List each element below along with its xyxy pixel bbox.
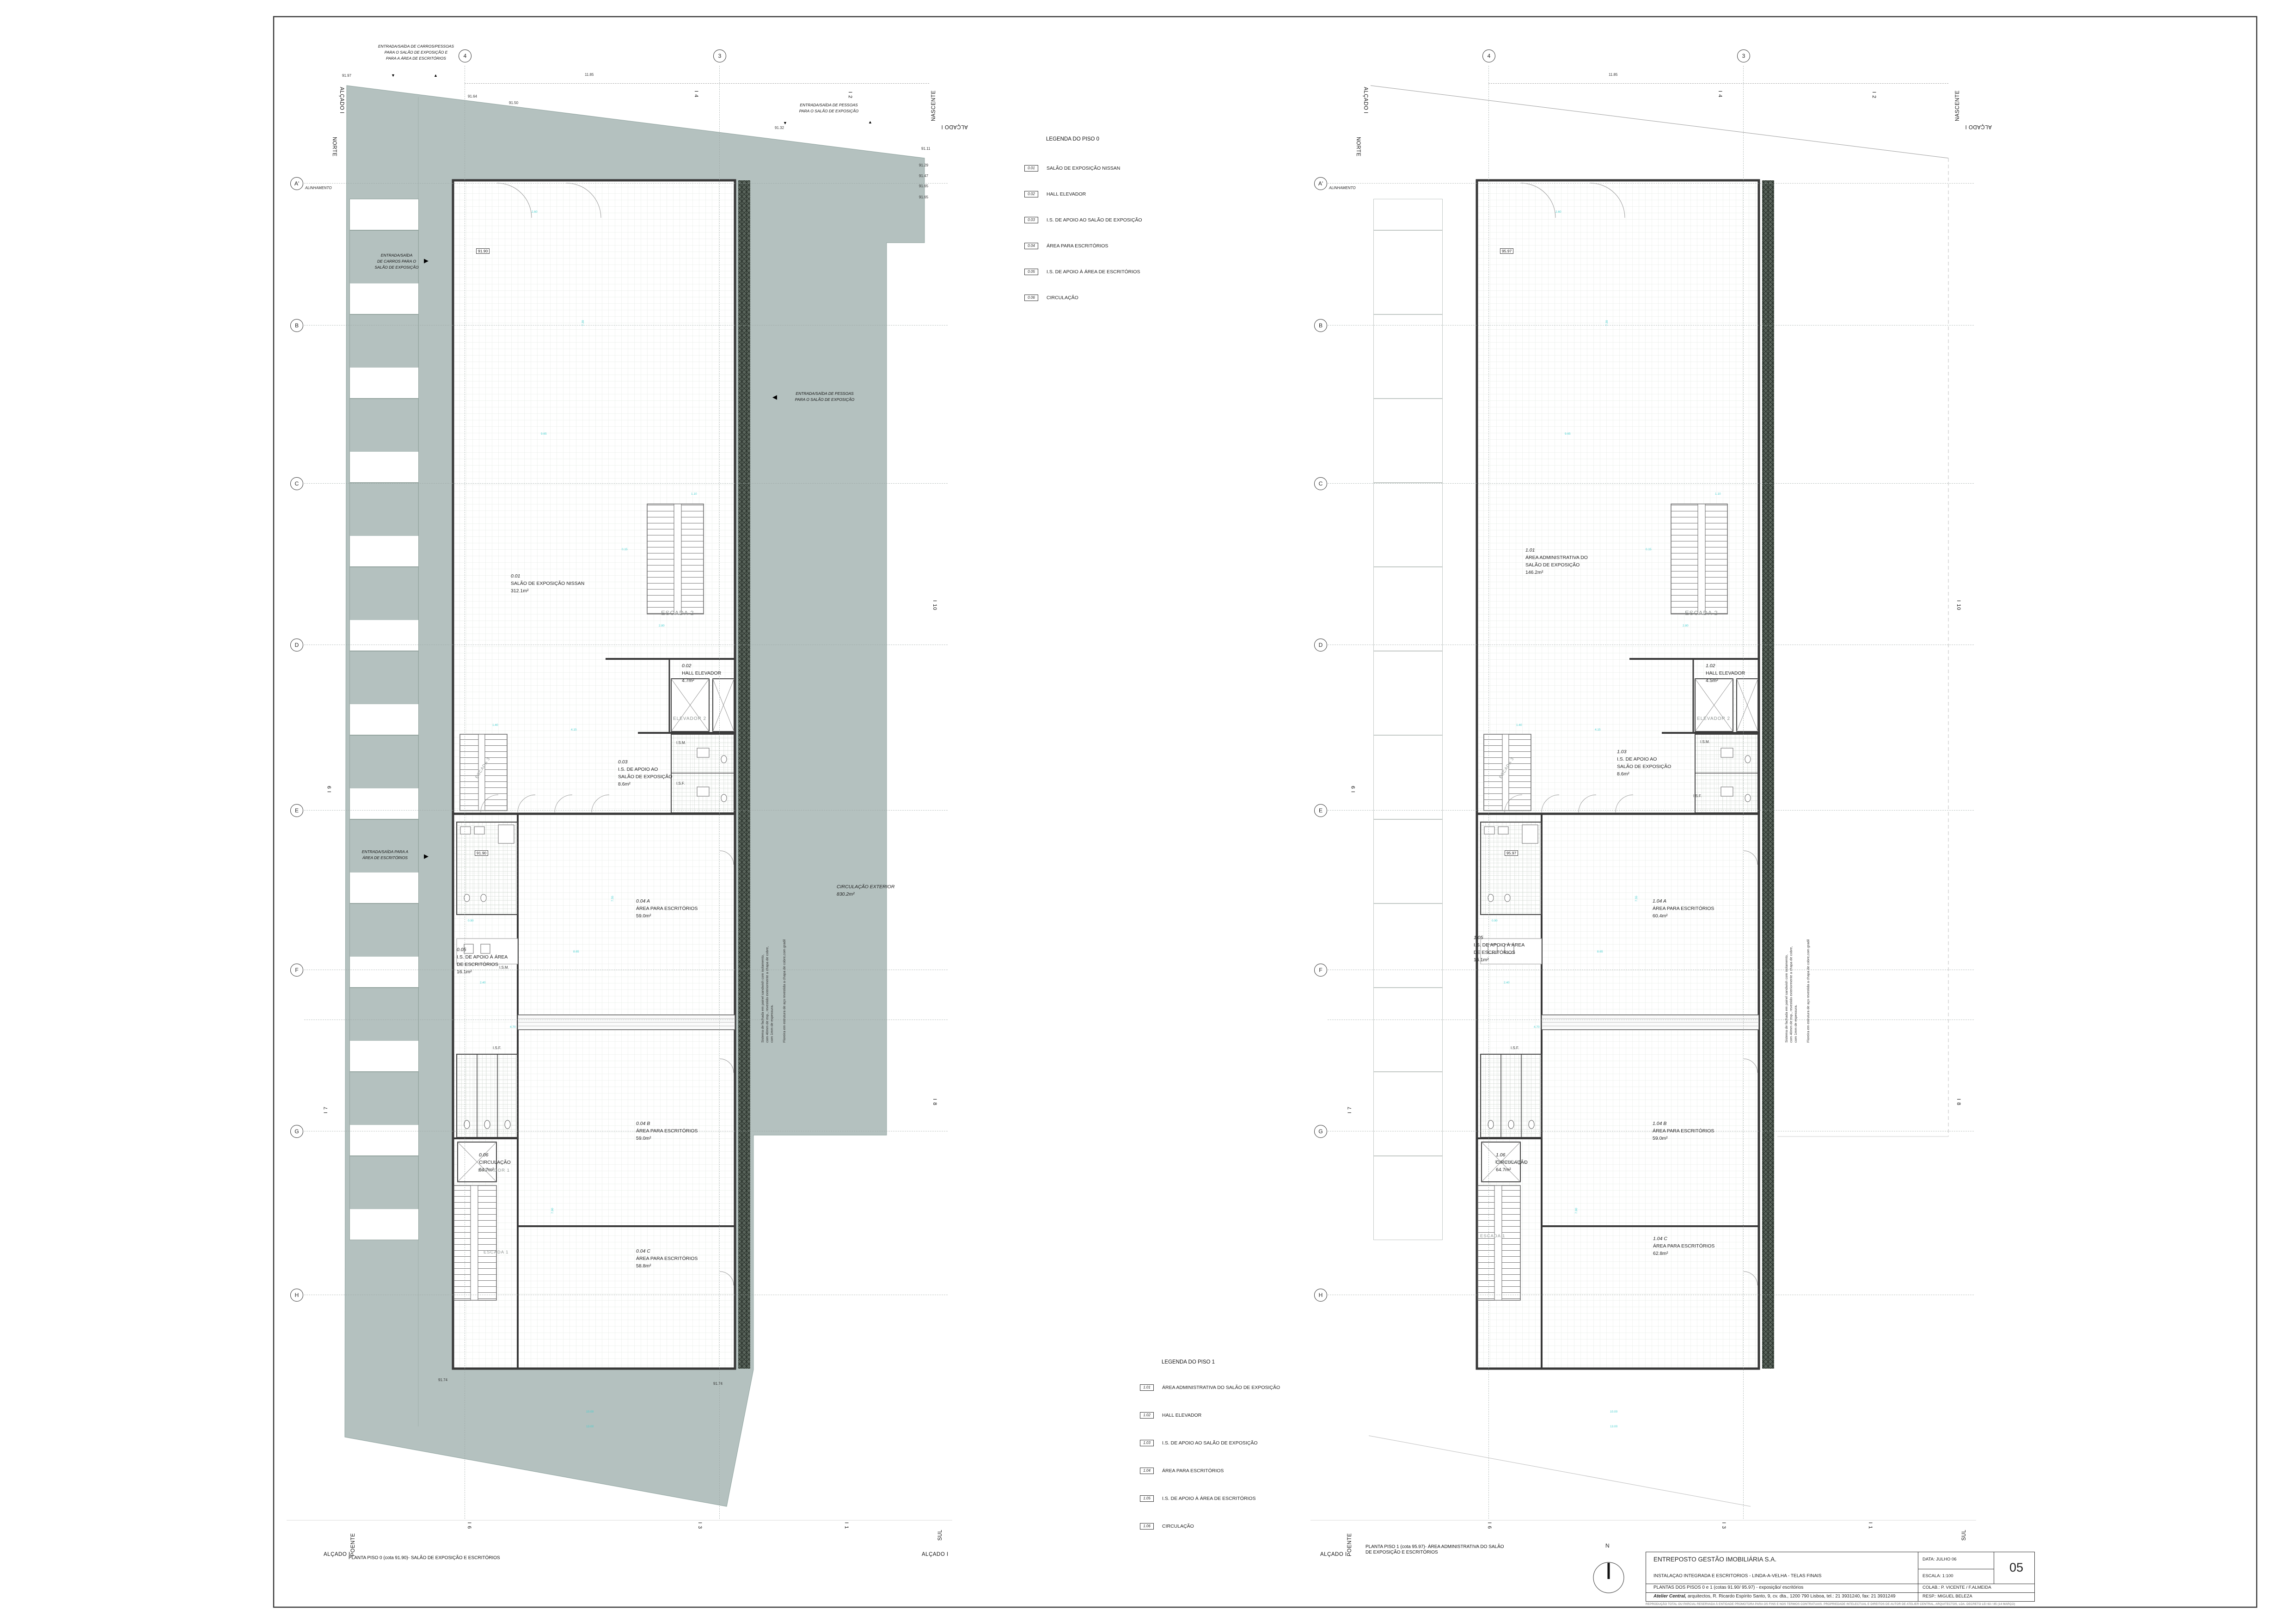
legend-label: I.S. DE APOIO AO SALÃO DE EXPOSIÇÃO — [1047, 217, 1142, 223]
legend-code: 0.03 — [1024, 217, 1038, 223]
dim-cyan: 13.00 — [1610, 1425, 1617, 1429]
section-mark: I 6 — [466, 1522, 472, 1529]
section-mark: I 3 — [1720, 1522, 1727, 1529]
elevador2-label: ELEVADOR 2 — [673, 716, 706, 722]
elevador1-label: ELEVADOR 1 — [478, 1168, 510, 1173]
grid-bubble-row: H — [290, 1289, 303, 1302]
grid-bubble-row: G — [1314, 1125, 1327, 1138]
annotation-layer: A'A'BBCCDDEEFFGGHH4343LEGENDA DO PISO 00… — [0, 0, 2296, 1622]
grid-bubble-row: F — [1314, 964, 1327, 977]
grid-line — [1328, 183, 1974, 184]
level-label: 91.65 — [919, 195, 928, 200]
legend-label: CIRCULAÇÃO — [1162, 1524, 1194, 1529]
norte-label: NORTE — [331, 137, 337, 157]
dim-cyan: 0.90 — [468, 919, 474, 923]
grid-line — [1328, 970, 1974, 970]
room-0-04b: 0.04 BÁREA PARA ESCRITÓRIOS59.0m² — [636, 1120, 698, 1142]
section-mark: I 7 — [323, 1106, 329, 1113]
grid-line — [304, 970, 948, 970]
escada3-label: ESCADA 3 — [1498, 756, 1515, 780]
isf-label: I.S.F. — [676, 781, 685, 786]
room-1-03: 1.03I.S. DE APOIO AOSALÃO DE EXPOSIÇÃO8.… — [1617, 748, 1671, 778]
level-box: 91.90 — [476, 248, 490, 254]
grid-line — [304, 1295, 948, 1295]
grid-bubble-row: E — [290, 804, 303, 817]
dim-cyan: 4.70 — [1534, 1026, 1540, 1029]
legend-item: 1.05I.S. DE APOIO À ÁREA DE ESCRITÓRIOS — [1140, 1494, 1255, 1503]
poente-label: POENTE — [350, 1533, 357, 1556]
room-1-04a: 1.04 AÁREA PARA ESCRITÓRIOS60.4m² — [1653, 897, 1714, 920]
project-title: INSTALAÇÃO INTEGRADA E ESCRITÓRIOS - LIN… — [1653, 1573, 1822, 1579]
room-1-02: 1.02HALL ELEVADOR4.5m² — [1706, 662, 1745, 684]
legend-label: CIRCULAÇÃO — [1047, 295, 1078, 301]
level-label: 91.74 — [713, 1382, 722, 1386]
grid-bubble-col: 3 — [713, 49, 726, 62]
nascente-label: NASCENTE — [1955, 90, 1961, 121]
legend-label: I.S. DE APOIO AO SALÃO DE EXPOSIÇÃO — [1162, 1440, 1258, 1446]
alinhamento-label: ALINHAMENTO — [1329, 186, 1356, 190]
alinhamento-label: ALINHAMENTO — [305, 186, 332, 190]
ism-label: I.S.M. — [676, 741, 686, 745]
dim-cyan: 2.80 — [1683, 624, 1689, 628]
legend-item: 0.05I.S. DE APOIO À ÁREA DE ESCRITÓRIOS — [1024, 268, 1140, 276]
room-1-04c: 1.04 CÁREA PARA ESCRITÓRIOS62.8m² — [1653, 1235, 1714, 1257]
grid-line — [719, 66, 720, 1519]
grid-line — [1488, 66, 1489, 1519]
facade-note: Sistema de fachada em painel sandwish co… — [760, 946, 774, 1043]
legend-item: 1.03I.S. DE APOIO AO SALÃO DE EXPOSIÇÃO — [1140, 1439, 1258, 1447]
grid-bubble-col: 3 — [1737, 49, 1750, 62]
dim-cyan: 2.40 — [480, 981, 486, 985]
room-0-03: 0.03I.S. DE APOIO AOSALÃO DE EXPOSIÇÃO8.… — [618, 758, 672, 788]
legend-code: 0.04 — [1024, 243, 1038, 249]
legend-title: LEGENDA DO PISO 0 — [1046, 136, 1099, 142]
dim-cyan: 7.39 — [1605, 320, 1609, 326]
north-letter: N — [1605, 1542, 1610, 1549]
legend-item: 0.03I.S. DE APOIO AO SALÃO DE EXPOSIÇÃO — [1024, 216, 1142, 224]
grid-line — [1328, 645, 1974, 645]
level-label: 91.11 — [921, 147, 930, 151]
legend-code: 1.03 — [1140, 1440, 1154, 1446]
sheet-number: 05 — [1998, 1561, 2034, 1575]
legend-code: 1.06 — [1140, 1523, 1154, 1530]
dim-cyan: 8.65 — [573, 950, 579, 954]
alcado-label: ALÇADO I — [941, 123, 968, 129]
dim-cyan: 7.55 — [1635, 896, 1639, 902]
level-label: 91.74 — [438, 1378, 447, 1382]
facade-note: Sistema de fachada em painel sandwish co… — [1784, 946, 1798, 1043]
legend-label: HALL ELEVADOR — [1162, 1413, 1201, 1418]
legend-code: 0.01 — [1024, 165, 1038, 172]
arrow-left-icon: ◀ — [772, 393, 777, 401]
alcado-label: ALÇADO I — [1362, 87, 1368, 114]
grid-bubble-row: C — [1314, 477, 1327, 490]
legend-item: 1.02HALL ELEVADOR — [1140, 1411, 1201, 1419]
section-mark: I 7 — [1347, 1106, 1353, 1113]
section-mark: I 10 — [1955, 600, 1961, 610]
dim-cyan: 2.60 — [1555, 210, 1561, 214]
level-label: 91.29 — [919, 163, 928, 168]
dim-cyan: 9.65 — [1565, 432, 1571, 436]
grid-line — [1743, 66, 1744, 1519]
grid-bubble-row: G — [290, 1125, 303, 1138]
legend-code: 1.01 — [1140, 1384, 1154, 1391]
alcado-label: ALÇADO I — [922, 1552, 949, 1558]
legend-item: 0.02HALL ELEVADOR — [1024, 190, 1086, 198]
grid-bubble-row: C — [290, 477, 303, 490]
legend-item: 0.01SALÃO DE EXPOSIÇÃO NISSAN — [1024, 164, 1120, 172]
dim-cyan: 9.65 — [541, 432, 547, 436]
legend-item: 1.04ÁREA PARA ESCRITÓRIOS — [1140, 1467, 1224, 1475]
escada3-label: ESCADA 3 — [474, 756, 491, 780]
dim-cyan: 0.15 — [622, 548, 628, 552]
copyright-fine-print: REPRODUÇÃO TOTAL OU PARCIAL RESERVADA À … — [1646, 1603, 2015, 1606]
ism-label: I.S.M. — [499, 965, 509, 970]
section-mark: I 4 — [1717, 91, 1723, 98]
alcado-label: ALÇADO I — [1320, 1552, 1347, 1558]
triangle-down-icon: ▼ — [391, 73, 395, 78]
section-mark: I 6 — [1486, 1522, 1492, 1529]
grid-bubble-row: E — [1314, 804, 1327, 817]
legend-label: I.S. DE APOIO À ÁREA DE ESCRITÓRIOS — [1162, 1496, 1255, 1501]
dim-cyan: 1.40 — [1516, 724, 1522, 727]
room-0-05: 0.05I.S. DE APOIO À ÁREADE ESCRITÓRIOS16… — [457, 946, 508, 976]
dim-cyan: 1.40 — [492, 724, 498, 727]
escada2-label: ESCADA 2 — [661, 609, 694, 617]
grid-bubble-row: A' — [290, 177, 303, 190]
level-box: 95.97 — [1500, 248, 1513, 254]
isf-label: I.S.F. — [1693, 794, 1702, 799]
section-mark: I 4 — [693, 91, 699, 98]
room-0-04a: 0.04 AÁREA PARA ESCRITÓRIOS59.0m² — [636, 897, 698, 920]
legend-code: 1.02 — [1140, 1412, 1154, 1419]
grid-bubble-row: D — [290, 639, 303, 651]
legend-item: 1.06CIRCULAÇÃO — [1140, 1522, 1194, 1530]
legend-item: 0.04ÁREA PARA ESCRITÓRIOS — [1024, 242, 1108, 250]
grid-line — [1328, 810, 1974, 811]
section-mark: I 9 — [1351, 786, 1357, 793]
circulacao-exterior-label: CIRCULAÇÃO EXTERIOR830.2m² — [837, 883, 894, 898]
legend-label: I.S. DE APOIO À ÁREA DE ESCRITÓRIOS — [1047, 269, 1140, 275]
dim-cyan: 7.55 — [611, 896, 615, 902]
dim-cyan: 4.70 — [510, 1026, 516, 1029]
grid-bubble-row: H — [1314, 1289, 1327, 1302]
sheet-title: PLANTAS DOS PISOS 0 e 1 (cotas 91.90/ 95… — [1653, 1585, 1803, 1590]
level-label: 91.64 — [468, 94, 477, 99]
level-label: 91.32 — [775, 126, 784, 130]
section-mark: I 8 — [1955, 1099, 1961, 1106]
date-field: DATA: JULHO 06 — [1923, 1557, 1957, 1562]
room-1-01: 1.01ÁREA ADMINISTRATIVA DOSALÃO DE EXPOS… — [1525, 547, 1588, 576]
grid-bubble-row: D — [1314, 639, 1327, 651]
level-label: 91.65 — [919, 184, 928, 189]
section-mark: I 9 — [327, 786, 333, 793]
level-label: 91.47 — [919, 174, 928, 178]
norte-label: NORTE — [1354, 137, 1361, 157]
dim-cyan: 1.10 — [691, 492, 697, 496]
grid-line — [1328, 1295, 1974, 1295]
alcado-label: ALÇADO I — [324, 1552, 350, 1558]
dim-label: 11.85 — [585, 73, 594, 77]
grid-line — [304, 483, 948, 484]
dim-cyan: 4.15 — [571, 728, 577, 732]
level-label: 91.97 — [342, 74, 351, 78]
dim-cyan: 7.39 — [582, 320, 585, 326]
dim-cyan: 2.80 — [659, 624, 665, 628]
entry-note-people-mid: ENTRADA/SAÍDA DE PESSOASPARA O SALÃO DE … — [787, 391, 862, 403]
responsible-field: RESP.: MIGUEL BELEZA — [1923, 1594, 1972, 1599]
dim-cyan: 7.90 — [1575, 1208, 1579, 1214]
dim-cyan: 10.00 — [586, 1410, 594, 1414]
grid-line — [1328, 1020, 1974, 1020]
grid-bubble-row: B — [290, 319, 303, 332]
scale-field: ESCALA: 1:100 — [1923, 1573, 1953, 1579]
drawing-sheet: A'A'BBCCDDEEFFGGHH4343LEGENDA DO PISO 00… — [0, 0, 2296, 1622]
grid-bubble-row: A' — [1314, 177, 1327, 190]
level-box: 91.90 — [475, 850, 488, 856]
triangle-up-icon: ▲ — [868, 120, 872, 125]
dim-label: 11.85 — [1609, 73, 1617, 77]
legend-title: LEGENDA DO PISO 1 — [1162, 1359, 1215, 1365]
caption-piso0: PLANTA PISO 0 (cota 91.90)- SALÃO DE EXP… — [349, 1555, 500, 1561]
elevador2-label: ELEVADOR 2 — [1697, 716, 1730, 722]
escada2-label: ESCADA 2 — [1685, 609, 1718, 617]
entry-note-cars-people: ENTRADA/SAÍDA DE CARROS/PESSOASPARA O SA… — [370, 43, 462, 62]
section-mark: I 2 — [847, 92, 853, 98]
dim-cyan: 1.10 — [1715, 492, 1721, 496]
entry-note-people-top: ENTRADA/SAÍDA DE PESSOASPARA O SALÃO DE … — [793, 102, 864, 114]
alcado-label: ALÇADO I — [1965, 123, 1992, 129]
grid-line — [304, 325, 948, 326]
section-mark: I 10 — [931, 600, 937, 610]
architect-line: Atelier Central, arquitectos, R. Ricardo… — [1653, 1594, 1895, 1599]
grid-line — [465, 66, 465, 1519]
entry-note-offices: ENTRADA/SAÍDA PARA AÁREA DE ESCRITÓRIOS — [357, 849, 413, 861]
dim-cyan: 2.60 — [532, 210, 538, 214]
caption-piso1: PLANTA PISO 1 (cota 95.97)- ÁREA ADMINIS… — [1365, 1544, 1504, 1555]
room-0-01: 0.01SALÃO DE EXPOSIÇÃO NISSAN312.1m² — [511, 572, 584, 595]
dim-cyan: 0.15 — [1646, 548, 1652, 552]
escada1-label: ESCADA 1 — [484, 1250, 508, 1255]
dim-cyan: 4.15 — [1595, 728, 1601, 732]
sul-label: SUL — [1961, 1530, 1968, 1541]
grid-line — [1328, 1131, 1974, 1131]
isf-label: I.S.F. — [1511, 1046, 1519, 1051]
section-mark: I 1 — [1867, 1522, 1873, 1529]
grid-line — [1328, 483, 1974, 484]
floreira-note: Floreira em estrutura de aço revestida a… — [1806, 940, 1811, 1043]
title-block: ENTREPOSTO GESTÃO IMOBILIÁRIA S.A. INSTA… — [1646, 1552, 2035, 1602]
dim-cyan: 10.00 — [1610, 1410, 1617, 1414]
company-name: ENTREPOSTO GESTÃO IMOBILIÁRIA S.A. — [1653, 1556, 1776, 1563]
triangle-up-icon: ▲ — [434, 73, 438, 78]
grid-bubble-row: B — [1314, 319, 1327, 332]
entry-note-cars: ENTRADA/SAÍDADE CARROS PARA OSALÃO DE EX… — [368, 252, 425, 271]
elevador1-label: ELEVADOR 1 — [1495, 1160, 1527, 1165]
legend-code: 0.06 — [1024, 295, 1038, 301]
arrow-right-icon: ▶ — [424, 257, 429, 264]
legend-label: ÁREA PARA ESCRITÓRIOS — [1162, 1468, 1224, 1474]
section-mark: I 2 — [1871, 92, 1877, 98]
legend-code: 1.05 — [1140, 1495, 1154, 1502]
room-1-04b: 1.04 BÁREA PARA ESCRITÓRIOS59.0m² — [1653, 1120, 1714, 1142]
legend-item: 1.01ÁREA ADMINISTRATIVA DO SALÃO DE EXPO… — [1140, 1383, 1280, 1392]
legend-item: 0.06CIRCULAÇÃO — [1024, 294, 1078, 302]
alcado-label: ALÇADO I — [338, 87, 344, 114]
dim-cyan: 2.40 — [1504, 981, 1510, 985]
nascente-label: NASCENTE — [931, 90, 937, 121]
grid-line — [304, 1131, 948, 1131]
section-mark: I 8 — [931, 1099, 937, 1106]
legend-code: 0.05 — [1024, 269, 1038, 275]
section-mark: I 3 — [697, 1522, 703, 1529]
floreira-note: Floreira em estrutura de aço revestida a… — [782, 940, 787, 1043]
legend-label: ÁREA ADMINISTRATIVA DO SALÃO DE EXPOSIÇÃ… — [1162, 1385, 1280, 1390]
legend-label: ÁREA PARA ESCRITÓRIOS — [1047, 243, 1108, 249]
grid-line — [304, 1020, 948, 1020]
level-box: 95.97 — [1505, 850, 1518, 856]
ism-label: I.S.M. — [1700, 740, 1710, 744]
room-0-02: 0.02HALL ELEVADOR4.7m² — [682, 662, 721, 684]
room-0-04c: 0.04 CÁREA PARA ESCRITÓRIOS58.8m² — [636, 1247, 698, 1270]
grid-line — [304, 183, 948, 184]
grid-line — [1328, 325, 1974, 326]
dim-cyan: 7.90 — [551, 1208, 555, 1214]
isf-label: I.S.F. — [493, 1046, 501, 1051]
grid-line — [304, 810, 948, 811]
legend-code: 1.04 — [1140, 1468, 1154, 1474]
legend-code: 0.02 — [1024, 191, 1038, 197]
section-mark: I 1 — [843, 1522, 849, 1529]
room-1-05: 1.05I.S. DE APOIO À ÁREADE ESCRITÓRIOS16… — [1474, 934, 1525, 964]
dim-cyan: 13.00 — [586, 1425, 594, 1429]
dim-cyan: 0.90 — [1492, 919, 1498, 923]
dim-cyan: 8.65 — [1597, 950, 1603, 954]
grid-bubble-row: F — [290, 964, 303, 977]
legend-label: SALÃO DE EXPOSIÇÃO NISSAN — [1047, 166, 1120, 171]
sul-label: SUL — [937, 1530, 944, 1541]
triangle-down-icon: ▼ — [783, 121, 787, 126]
level-label: 91.50 — [509, 101, 518, 105]
grid-line — [304, 645, 948, 645]
escada1-label: ESCADA 1 — [1480, 1234, 1505, 1239]
grid-bubble-col: 4 — [1482, 49, 1495, 62]
legend-label: HALL ELEVADOR — [1047, 191, 1086, 197]
collaborators-field: COLAB.: P. VICENTE / F.ALMEIDA — [1923, 1585, 1991, 1590]
poente-label: POENTE — [1347, 1533, 1353, 1556]
arrow-right-icon: ▶ — [424, 853, 429, 860]
